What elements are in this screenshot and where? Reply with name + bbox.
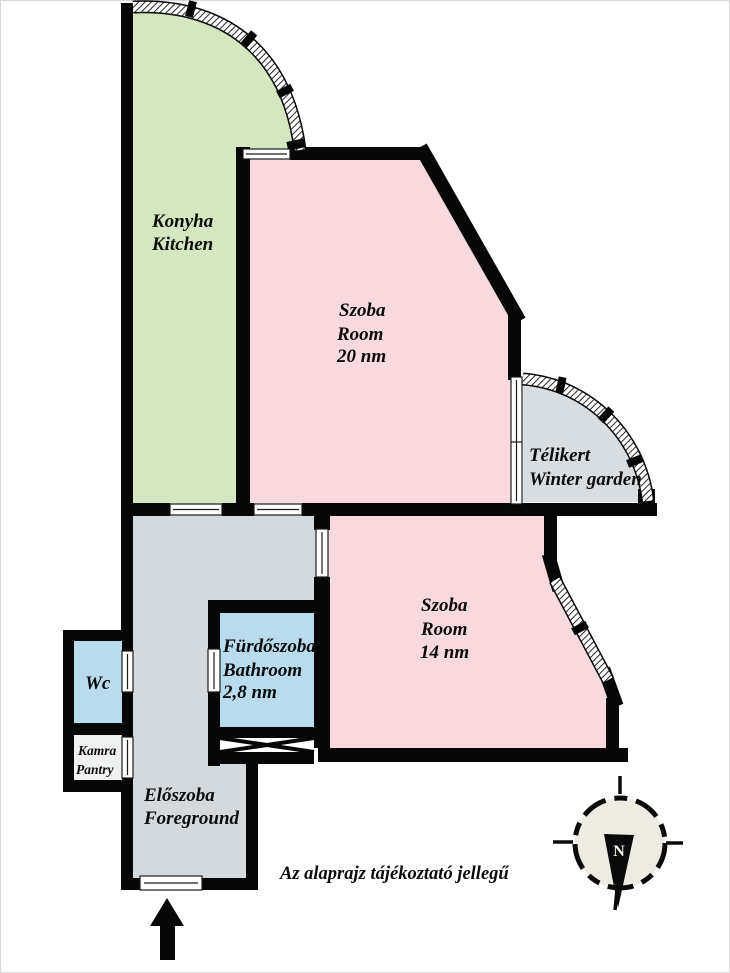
bathroom-label-en: Bathroom [222,660,302,681]
room20-door [254,504,302,515]
room14-label-hu: Szoba [421,595,468,616]
room14-label-en: Room [420,619,467,640]
room20-window [243,149,290,159]
kitchen-label-en: Kitchen [151,234,213,255]
kitchen-door [170,504,222,515]
bathroom-door [208,649,220,692]
winter-garden-label-en: Winter garden [529,469,642,490]
room20-area-label: 20 nm [336,346,386,367]
pantry-label-en: Pantry [76,762,115,777]
room14-area-label: 14 nm [420,642,469,663]
kitchen-label-hu: Konyha [151,211,214,232]
compass-north-label: N [613,843,625,860]
room14-window [316,529,328,577]
pantry-door [122,737,133,778]
pantry-label-hu: Kamra [77,743,117,758]
wc-label: Wc [85,673,111,694]
wc-door [122,651,133,692]
winter-garden-glass-wall [511,377,522,504]
entrance-arrow-icon [150,898,184,960]
hall-label-hu: Előszoba [143,785,215,806]
room20-label-hu: Szoba [339,300,386,321]
winter-garden-label-hu: Télikert [529,445,591,466]
bathroom-area-label: 2,8 nm [222,682,277,703]
entrance-door [140,876,202,890]
bathroom-label-hu: Fürdőszoba [222,636,316,657]
floor-plan-page: N Konyha Kitchen Szoba Room 20 nm Télike… [0,0,730,973]
hall-label-en: Foreground [143,808,240,829]
compass-rose: N [553,776,683,910]
room20-label-en: Room [336,324,383,345]
bathroom-shaft [220,738,314,752]
disclaimer-note: Az alaprajz tájékoztató jellegű [279,864,509,884]
room20-floor [250,152,518,506]
floor-plan-image: N Konyha Kitchen Szoba Room 20 nm Télike… [0,0,730,973]
